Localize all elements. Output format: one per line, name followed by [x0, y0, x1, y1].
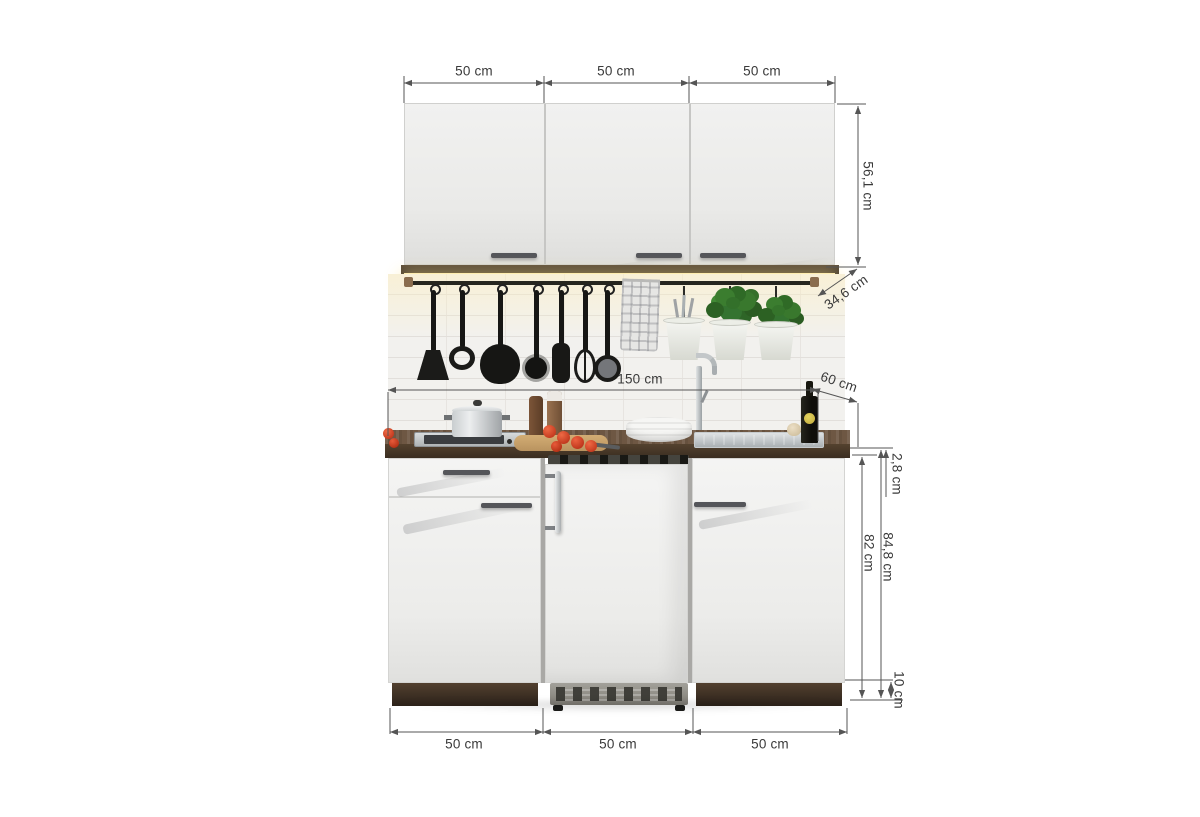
- dim-label-worktop-thickness: 2,8 cm: [890, 453, 905, 495]
- cooktop-knob: [507, 439, 512, 444]
- utensil-handle: [460, 290, 465, 348]
- base-cabinet-right: [692, 458, 845, 683]
- utensil-rail: [410, 281, 818, 285]
- herb-plant: [772, 305, 785, 316]
- wall-cabinet-handle: [491, 253, 537, 258]
- drawer-gap-line: [389, 496, 540, 498]
- utensil-handle: [605, 290, 610, 358]
- utensil-handle: [431, 290, 436, 352]
- dim-label-wall-height: 56,1 cm: [861, 161, 876, 210]
- tomato: [585, 440, 597, 452]
- spatula-utensil: [552, 343, 570, 383]
- hanging-pot-rim: [663, 317, 705, 324]
- hanging-pot-rim: [709, 319, 751, 326]
- utensil-handle: [559, 290, 564, 346]
- floor-shadow: [386, 701, 850, 713]
- drawer-handle: [443, 470, 490, 475]
- garlic-bulb: [787, 423, 801, 436]
- cooking-pot-body: [452, 411, 502, 437]
- kitchenette-dimension-diagram: 50 cm 50 cm 50 cm 56,1 cm 34,6 cm 150 cm…: [0, 0, 1200, 817]
- cooking-pot-handle: [502, 415, 510, 420]
- wall-cabinet-divider: [689, 104, 691, 264]
- plate-stack: [626, 417, 692, 442]
- utensil-handle: [498, 290, 503, 348]
- hanging-pot-rim: [754, 321, 798, 328]
- kitchen-towel: [620, 278, 660, 351]
- wall-cabinet-divider: [544, 104, 546, 264]
- utensil-handle: [583, 290, 588, 352]
- base-door-handle: [694, 502, 746, 507]
- hanging-pot: [710, 322, 750, 360]
- dim-label-top-width-1: 50 cm: [455, 64, 493, 79]
- dim-label-total-width: 150 cm: [617, 372, 662, 387]
- tomato: [571, 436, 584, 449]
- wine-bottle-label: [804, 413, 815, 424]
- faucet-spout-tip: [712, 366, 717, 375]
- dim-label-bottom-width-1: 50 cm: [445, 737, 483, 752]
- fridge-handle: [555, 471, 561, 533]
- dim-label-bottom-width-3: 50 cm: [751, 737, 789, 752]
- cooking-pot-knob: [473, 400, 482, 406]
- dim-label-plinth-height: 10 cm: [892, 671, 907, 709]
- rail-end-mount: [810, 277, 819, 287]
- utensil-handle: [534, 290, 539, 360]
- wall-cabinet-handle: [636, 253, 682, 258]
- base-door-handle: [481, 503, 532, 508]
- spoon-utensil: [480, 344, 520, 384]
- wall-cabinet-row: [404, 103, 835, 265]
- masher-utensil: [449, 346, 475, 370]
- tomato: [551, 441, 562, 452]
- herb-plant: [726, 297, 740, 309]
- dim-label-top-width-3: 50 cm: [743, 64, 781, 79]
- spiky-masher-utensil: [525, 357, 547, 379]
- fridge-grille-slots: [556, 687, 682, 701]
- cooking-pot-handle: [444, 415, 452, 420]
- dim-label-height-total: 84,8 cm: [881, 532, 896, 581]
- whisk-wire: [584, 350, 586, 382]
- spice-mill-cap: [547, 391, 562, 401]
- dim-label-top-width-2: 50 cm: [597, 64, 635, 79]
- tomato: [389, 438, 399, 448]
- tomato: [543, 425, 556, 438]
- dim-label-bottom-width-2: 50 cm: [599, 737, 637, 752]
- wall-cabinet-handle: [700, 253, 746, 258]
- hanging-pot: [755, 324, 797, 360]
- rail-end-mount: [404, 277, 413, 287]
- fridge-door: [545, 464, 688, 683]
- dim-label-height-body: 82 cm: [862, 534, 877, 572]
- sink-basin: [703, 435, 815, 445]
